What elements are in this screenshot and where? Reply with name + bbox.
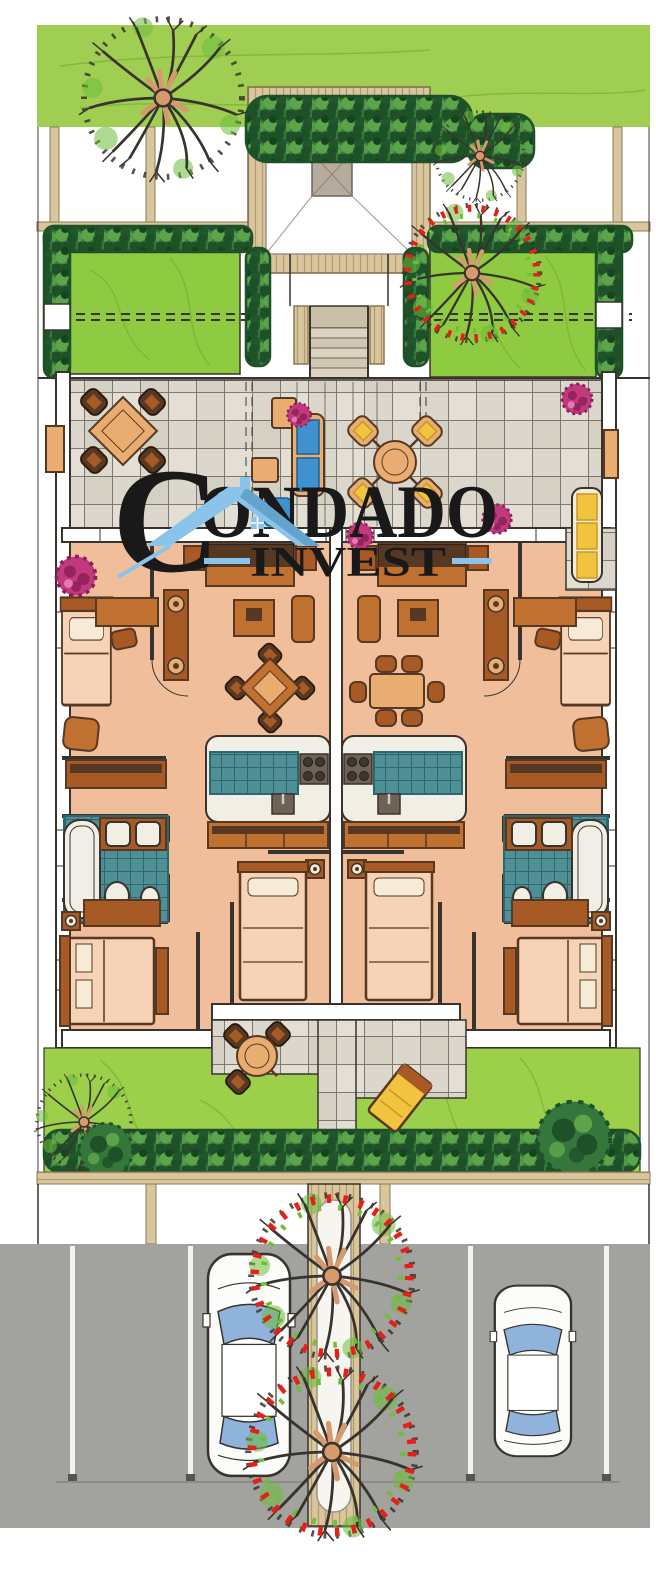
site-plan-drawing: C ONDADO INVEST	[0, 0, 656, 1579]
stair-planter	[370, 306, 384, 364]
bed-bench	[156, 948, 168, 1014]
rear-wall-center	[212, 1004, 460, 1020]
garden-hedge	[246, 248, 270, 366]
kitchen-worktop	[210, 752, 298, 794]
rear-round-table	[237, 1036, 277, 1076]
stall-line	[468, 1246, 473, 1478]
wall-pillar	[50, 127, 59, 223]
logo-rule-right	[452, 558, 492, 564]
kitchen-cabinets	[208, 822, 328, 848]
pink-shrub	[57, 557, 96, 596]
garden-gate	[596, 302, 622, 328]
nightstand	[62, 912, 80, 930]
stair-tread	[310, 338, 368, 348]
terrace-bench	[604, 430, 618, 478]
garden-hedge	[44, 226, 70, 378]
logo-chimney	[240, 477, 250, 489]
garden-lawn-left	[70, 250, 240, 374]
stair-tread	[310, 368, 368, 378]
dining-chair	[376, 656, 396, 672]
sink	[106, 822, 130, 846]
dining-chair	[350, 682, 366, 702]
front-garden-left	[46, 250, 264, 374]
garden-lawn-right	[430, 248, 596, 377]
dining-chair	[402, 710, 422, 726]
stair-tread	[310, 328, 368, 338]
walkway	[37, 1172, 650, 1184]
garden-gate	[44, 304, 70, 330]
stair-tread	[310, 348, 368, 358]
sink	[136, 822, 160, 846]
dining-chair	[402, 656, 422, 672]
logo-subtitle: INVEST	[250, 540, 446, 586]
stall-line	[604, 1246, 609, 1478]
desk-chair	[110, 628, 137, 651]
site-plan-image: C ONDADO INVEST	[0, 0, 656, 1579]
pink-shrub	[562, 384, 592, 414]
armchair	[292, 596, 314, 642]
stair-landing	[310, 306, 368, 328]
rear-shrub	[538, 1102, 611, 1175]
terrace-bench	[46, 426, 64, 472]
rear-shrub	[79, 1123, 132, 1176]
stair-planter	[294, 306, 308, 364]
stair-tread	[310, 358, 368, 368]
garden-hedge	[44, 226, 252, 252]
wall-pillar	[613, 127, 622, 223]
party-wall	[330, 528, 342, 1022]
parked-car-right	[490, 1286, 576, 1457]
stall-line	[188, 1246, 193, 1478]
rear-wall-left-wing	[62, 1030, 212, 1048]
armchair	[62, 716, 99, 751]
logo-rule-left	[204, 558, 250, 564]
dining-table	[370, 674, 424, 708]
dining-chair	[376, 710, 396, 726]
sofa-cushion-yellow	[577, 523, 597, 549]
rear-wall-right-wing	[460, 1030, 610, 1048]
fence-post	[146, 1184, 156, 1244]
sofa-cushion-yellow	[577, 494, 597, 520]
stove	[300, 754, 328, 784]
pink-shrub	[287, 403, 310, 426]
dresser	[84, 900, 160, 926]
dining-chair	[428, 682, 444, 702]
stall-line	[70, 1246, 75, 1478]
sofa-cushion-yellow	[577, 552, 597, 578]
